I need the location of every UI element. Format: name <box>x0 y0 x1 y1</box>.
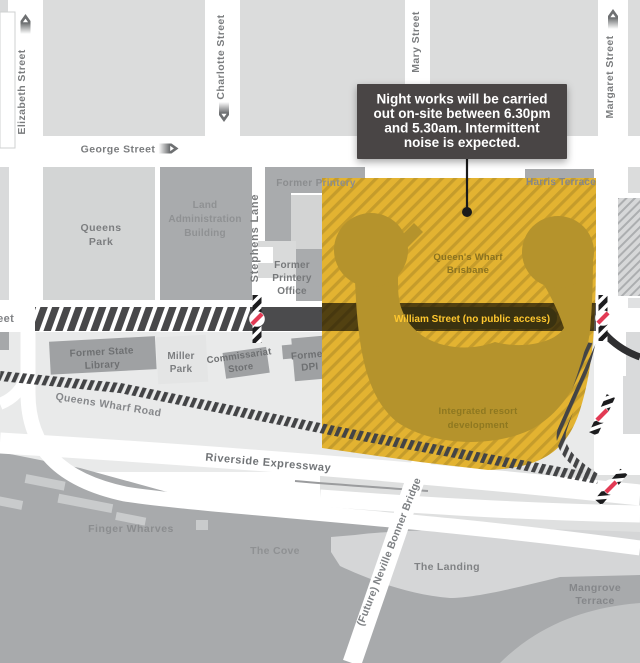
svg-text:Brisbane: Brisbane <box>447 265 489 276</box>
svg-text:Park: Park <box>170 364 193 375</box>
svg-text:Elizabeth Street: Elizabeth Street <box>16 49 28 134</box>
svg-text:development: development <box>448 420 509 431</box>
svg-text:Stephens Lane: Stephens Lane <box>249 194 261 283</box>
svg-text:noise is expected.: noise is expected. <box>404 135 520 150</box>
svg-text:Park: Park <box>89 236 113 248</box>
svg-text:Integrated resort: Integrated resort <box>439 406 519 417</box>
svg-text:Harris Terrace: Harris Terrace <box>526 177 596 188</box>
svg-text:The Cove: The Cove <box>250 545 300 557</box>
svg-text:William Street (no public acce: William Street (no public access) <box>394 314 550 325</box>
svg-text:Land: Land <box>193 200 218 211</box>
svg-text:Former: Former <box>274 260 310 271</box>
svg-text:and 5.30am. Intermittent: and 5.30am. Intermittent <box>384 121 540 136</box>
svg-text:Night works will be carried: Night works will be carried <box>376 92 547 107</box>
svg-text:Margaret Street: Margaret Street <box>604 35 616 118</box>
svg-text:Printery: Printery <box>272 273 312 284</box>
svg-text:Former Printery: Former Printery <box>276 178 356 189</box>
svg-text:Mangrove: Mangrove <box>569 582 621 594</box>
svg-text:Office: Office <box>277 286 307 297</box>
svg-text:Library: Library <box>84 359 120 372</box>
svg-text:Charlotte Street: Charlotte Street <box>215 14 227 99</box>
svg-text:DPI: DPI <box>301 361 319 373</box>
svg-text:Miller: Miller <box>167 351 194 362</box>
svg-text:Mary Street: Mary Street <box>410 11 422 73</box>
svg-text:Finger Wharves: Finger Wharves <box>88 523 174 535</box>
svg-text:Queens: Queens <box>81 222 122 234</box>
svg-text:Administration: Administration <box>168 214 241 225</box>
svg-text:George Street: George Street <box>81 144 156 156</box>
svg-text:William Street: William Street <box>0 313 14 325</box>
svg-text:Queen's Wharf: Queen's Wharf <box>433 252 503 263</box>
svg-text:The Landing: The Landing <box>414 561 480 573</box>
svg-text:out on-site between 6.30pm: out on-site between 6.30pm <box>373 106 550 121</box>
svg-text:Building: Building <box>184 228 226 239</box>
svg-text:Terrace: Terrace <box>575 595 614 607</box>
